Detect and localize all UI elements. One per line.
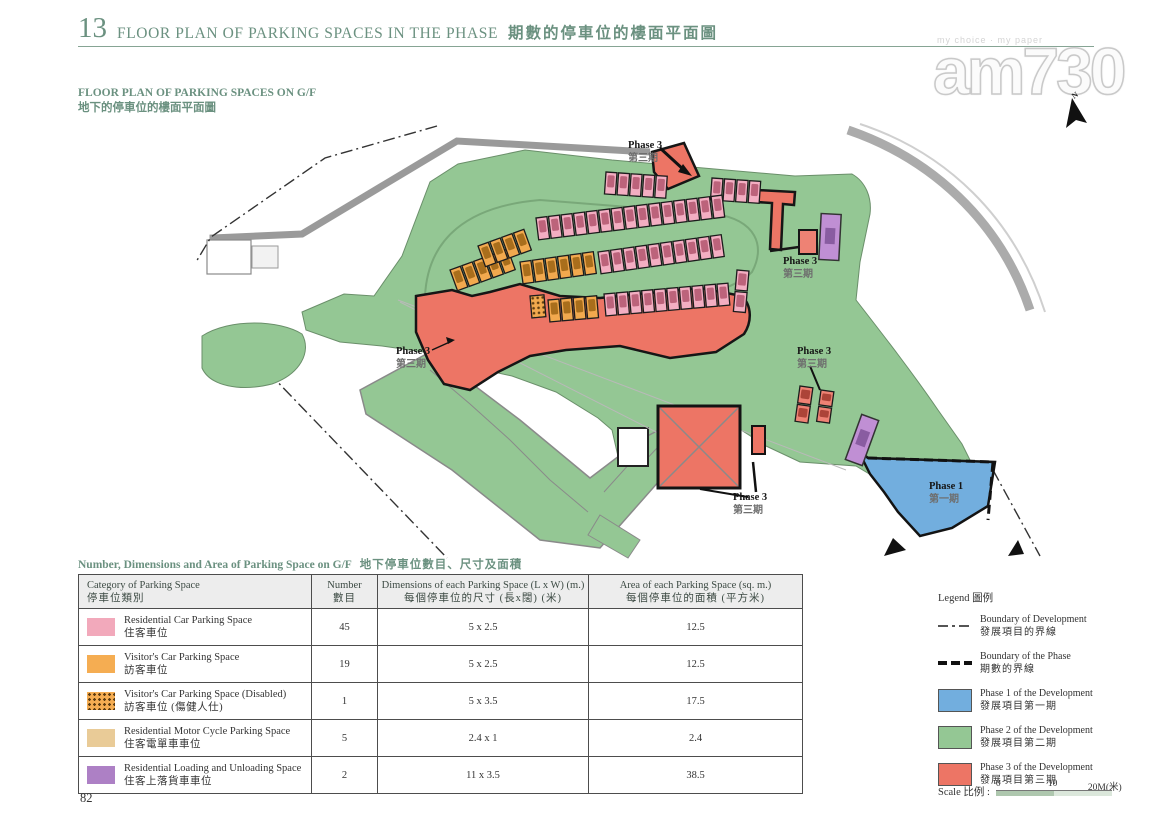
scale-label-en: Scale [938, 787, 961, 798]
col-number-zh: 數目 [312, 592, 377, 605]
map-phase-label-zh: 第一期 [929, 492, 959, 505]
map-phase-label-zh: 第三期 [797, 357, 827, 370]
legend-label-zh: 發展項目第二期 [980, 737, 1093, 750]
map-phase-label-zh: 第三期 [783, 267, 813, 280]
table-title-en: Number, Dimensions and Area of Parking S… [78, 559, 352, 571]
dashed-line-icon [938, 659, 972, 667]
category-zh: 訪客車位 [124, 664, 239, 677]
cell-area: 2.4 [589, 720, 803, 757]
legend-label-zh: 發展項目第一期 [980, 700, 1093, 713]
legend-title-zh: 圖例 [972, 593, 993, 604]
car-glyph [601, 212, 609, 225]
col-area-zh: 每個停車位的面積 (平方米) [589, 592, 802, 605]
legend-item: Phase 1 of the Development發展項目第一期 [938, 687, 1158, 713]
map-phase-label-zh: 第三期 [733, 503, 763, 516]
table-row: Residential Loading and Unloading Space住… [79, 757, 803, 794]
legend-label-zh: 發展項目的界線 [980, 626, 1087, 639]
cell-area: 12.5 [589, 646, 803, 683]
cell-dimensions: 5 x 2.5 [378, 609, 589, 646]
col-area-en: Area of each Parking Space (sq. m.) [589, 579, 802, 592]
section-number: 13 [78, 12, 107, 45]
car-glyph [550, 302, 558, 315]
page-title-zh: 期數的停車位的樓面平面圖 [508, 25, 718, 42]
parking-row [604, 172, 667, 198]
table-row: Visitor's Car Parking Space訪客車位 19 5 x 2… [79, 646, 803, 683]
map-phase-label-en: Phase 3 [797, 346, 831, 357]
car-glyph [688, 201, 696, 214]
car-glyph [694, 289, 702, 302]
scale-tick: 0 [996, 779, 1001, 789]
car-glyph [588, 299, 596, 312]
page-title: FLOOR PLAN OF PARKING SPACES IN THE PHAS… [117, 21, 718, 43]
col-area: Area of each Parking Space (sq. m.) 每個停車… [589, 575, 803, 609]
legend-title: Legend 圖例 [938, 590, 1158, 605]
cell-area: 12.5 [589, 609, 803, 646]
map-phase-label-zh: 第三期 [396, 357, 426, 370]
car-glyph [645, 178, 653, 190]
car-glyph [588, 214, 596, 227]
legend-label-en: Phase 3 of the Development [980, 761, 1093, 774]
col-dimensions-zh: 每個停車位的尺寸 (長x闊) (米) [378, 592, 588, 605]
category-swatch [87, 692, 115, 710]
car-glyph [713, 181, 721, 193]
cell-area: 17.5 [589, 683, 803, 720]
cell-number: 19 [312, 646, 378, 683]
parking-stall [530, 295, 546, 318]
col-category: Category of Parking Space 停車位類別 [79, 575, 312, 609]
car-glyph [563, 217, 571, 230]
col-dimensions-en: Dimensions of each Parking Space (L x W)… [378, 579, 588, 592]
car-glyph [563, 301, 571, 314]
col-number: Number 數目 [312, 575, 378, 609]
car-glyph [651, 206, 659, 219]
category-zh: 住客上落貨車車位 [124, 775, 301, 788]
legend-label-en: Phase 2 of the Development [980, 724, 1093, 737]
car-glyph [619, 295, 627, 308]
cell-number: 1 [312, 683, 378, 720]
car-glyph [626, 209, 634, 222]
page-number: 82 [80, 791, 93, 806]
legend-item: Phase 2 of the Development發展項目第二期 [938, 724, 1158, 750]
site-plan: N Phase 3第三期Phase 3第三期Phase 3第三期Phase 3第… [195, 88, 1095, 560]
watermark-tagline: my choice · my paper [937, 35, 1043, 45]
category-swatch [87, 729, 115, 747]
car-glyph [663, 205, 671, 218]
cell-dimensions: 5 x 2.5 [378, 646, 589, 683]
category-swatch [87, 655, 115, 673]
car-glyph [657, 179, 665, 191]
cell-number: 45 [312, 609, 378, 646]
cell-number: 2 [312, 757, 378, 794]
page-title-en: FLOOR PLAN OF PARKING SPACES IN THE PHAS… [117, 25, 498, 42]
legend-title-en: Legend [938, 593, 970, 604]
legend: Legend 圖例 Boundary of Development發展項目的界線… [938, 590, 1158, 798]
car-glyph [713, 198, 721, 211]
car-glyph [576, 215, 584, 228]
map-phase-label-en: Phase 3 [783, 256, 817, 267]
car-glyph [707, 287, 715, 300]
legend-label-zh: 期數的界線 [980, 663, 1071, 676]
scale-label: Scale 比例 : [938, 784, 990, 799]
category-en: Visitor's Car Parking Space [124, 651, 239, 664]
table-row: Visitor's Car Parking Space (Disabled)訪客… [79, 683, 803, 720]
cell-dimensions: 11 x 3.5 [378, 757, 589, 794]
car-glyph [632, 177, 640, 189]
cell-dimensions: 5 x 3.5 [378, 683, 589, 720]
col-dimensions: Dimensions of each Parking Space (L x W)… [378, 575, 589, 609]
car-glyph [620, 176, 628, 188]
col-category-en: Category of Parking Space [79, 579, 311, 592]
category-zh: 住客車位 [124, 627, 252, 640]
legend-item: Boundary of the Phase期數的界線 [938, 650, 1158, 676]
cell-area: 38.5 [589, 757, 803, 794]
car-glyph [538, 220, 546, 233]
car-glyph [738, 183, 746, 195]
phase2-swatch [938, 726, 972, 749]
car-glyph [638, 208, 646, 221]
scale-bar: Scale 比例 : 0 10 20M(米) [938, 779, 1134, 799]
category-swatch [87, 766, 115, 784]
car-glyph [607, 175, 615, 187]
car-glyph [726, 182, 734, 194]
table-row: Residential Motor Cycle Parking Space住客電… [79, 720, 803, 757]
car-glyph [736, 295, 745, 308]
parking-row [530, 295, 546, 318]
table-title: Number, Dimensions and Area of Parking S… [78, 556, 522, 572]
car-glyph [819, 410, 829, 418]
car-glyph [701, 200, 709, 213]
scale-bar-segment [996, 791, 1054, 796]
category-zh: 住客電單車車位 [124, 738, 290, 751]
car-glyph [682, 290, 690, 303]
car-glyph [751, 184, 759, 196]
cell-number: 5 [312, 720, 378, 757]
car-glyph [800, 389, 810, 399]
car-glyph [669, 291, 677, 304]
category-en: Visitor's Car Parking Space (Disabled) [124, 688, 286, 701]
car-glyph [575, 300, 583, 313]
car-glyph [551, 218, 559, 231]
dashdot-line-icon [938, 623, 972, 629]
car-glyph [613, 211, 621, 224]
cell-dimensions: 2.4 x 1 [378, 720, 589, 757]
courtyard [618, 428, 648, 466]
map-phase-label-en: Phase 3 [733, 492, 767, 503]
map-phase-label-zh: 第三期 [628, 151, 658, 164]
legend-label-en: Boundary of the Phase [980, 650, 1071, 663]
car-glyph [822, 393, 832, 401]
table-row: Residential Car Parking Space住客車位 45 5 x… [79, 609, 803, 646]
legend-item: Boundary of Development發展項目的界線 [938, 613, 1158, 639]
col-number-en: Number [312, 579, 377, 592]
car-glyph [738, 273, 747, 286]
phase1-swatch [938, 689, 972, 712]
scale-bar-segment [1054, 791, 1112, 796]
map-phase-label-en: Phase 3 [396, 346, 430, 357]
car-glyph [644, 293, 652, 306]
car-glyph [606, 296, 614, 309]
table-title-zh: 地下停車位數目、尺寸及面積 [360, 559, 523, 571]
scale-label-zh: 比例 [963, 787, 984, 798]
parking-table: Category of Parking Space 停車位類別 Number 數… [78, 574, 803, 794]
car-glyph [719, 286, 727, 299]
brochure-page: 13 FLOOR PLAN OF PARKING SPACES IN THE P… [0, 0, 1171, 827]
north-arrow: N [1066, 90, 1087, 128]
table-header-row: Category of Parking Space 停車位類別 Number 數… [79, 575, 803, 609]
col-category-zh: 停車位類別 [79, 592, 311, 605]
map-phase-label-en: Phase 3 [628, 140, 662, 151]
category-en: Residential Motor Cycle Parking Space [124, 725, 290, 738]
category-swatch [87, 618, 115, 636]
north-label: N [1070, 90, 1080, 101]
car-glyph [798, 408, 808, 418]
car-glyph [676, 203, 684, 216]
legend-label-en: Boundary of Development [980, 613, 1087, 626]
header-rule [78, 46, 1094, 47]
legend-label-en: Phase 1 of the Development [980, 687, 1093, 700]
category-zh: 訪客車位 (傷健人仕) [124, 701, 286, 714]
category-en: Residential Loading and Unloading Space [124, 762, 301, 775]
car-glyph [656, 292, 664, 305]
map-phase-label-en: Phase 1 [929, 481, 963, 492]
car-glyph [631, 294, 639, 307]
category-en: Residential Car Parking Space [124, 614, 252, 627]
scale-tick: 10 [1048, 779, 1058, 789]
